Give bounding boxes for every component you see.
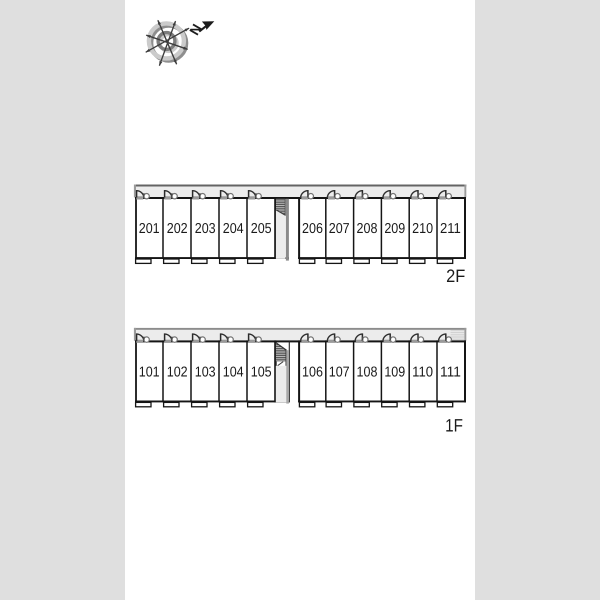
svg-text:206: 206: [302, 221, 323, 237]
svg-text:204: 204: [223, 221, 244, 237]
svg-text:111: 111: [440, 365, 461, 381]
svg-text:110: 110: [412, 365, 433, 381]
svg-text:105: 105: [251, 365, 272, 381]
svg-text:203: 203: [195, 221, 216, 237]
svg-text:2F: 2F: [446, 266, 465, 286]
svg-text:202: 202: [167, 221, 188, 237]
svg-text:103: 103: [195, 365, 216, 381]
svg-text:208: 208: [357, 221, 378, 237]
svg-text:102: 102: [167, 365, 188, 381]
svg-text:210: 210: [412, 221, 433, 237]
svg-text:107: 107: [329, 365, 350, 381]
svg-text:209: 209: [384, 221, 405, 237]
svg-text:1F: 1F: [445, 416, 463, 436]
svg-text:211: 211: [440, 221, 461, 237]
svg-text:205: 205: [251, 221, 272, 237]
svg-text:109: 109: [384, 365, 405, 381]
svg-text:108: 108: [357, 365, 378, 381]
svg-text:207: 207: [329, 221, 350, 237]
svg-text:201: 201: [139, 221, 160, 237]
svg-text:106: 106: [302, 365, 323, 381]
svg-text:104: 104: [223, 365, 244, 381]
svg-text:101: 101: [139, 365, 160, 381]
